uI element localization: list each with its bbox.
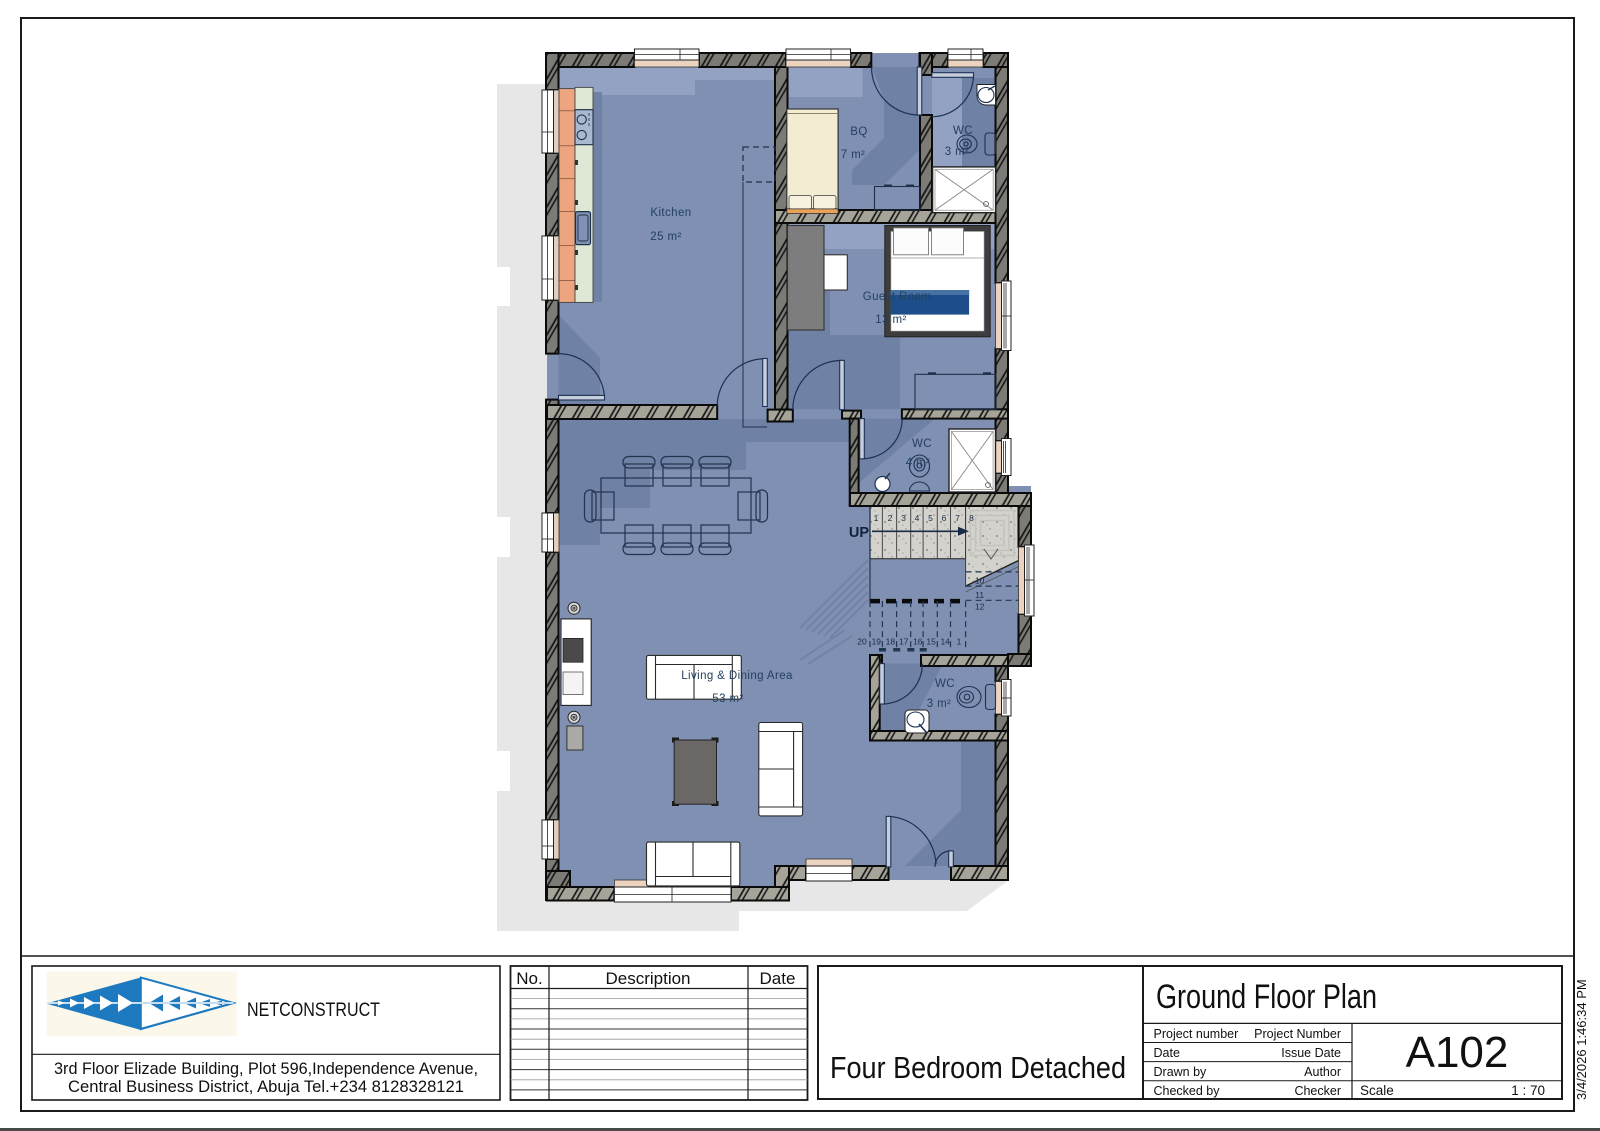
svg-text:1: 1	[957, 637, 962, 647]
svg-text:3/4/2026 1:46:34 PM: 3/4/2026 1:46:34 PM	[1574, 979, 1589, 1100]
svg-text:18: 18	[886, 637, 896, 647]
svg-text:BQ: BQ	[850, 126, 867, 138]
svg-text:1 : 70: 1 : 70	[1511, 1083, 1545, 1098]
svg-text:Guest Room: Guest Room	[863, 291, 932, 303]
svg-text:Checker: Checker	[1294, 1084, 1341, 1098]
svg-text:3 m²: 3 m²	[927, 698, 952, 710]
svg-text:Kitchen: Kitchen	[650, 207, 691, 219]
svg-text:UP: UP	[849, 525, 869, 541]
svg-text:25 m²: 25 m²	[650, 231, 681, 243]
svg-text:Date: Date	[760, 969, 796, 988]
svg-text:Scale: Scale	[1360, 1083, 1394, 1098]
svg-text:Author: Author	[1304, 1065, 1341, 1079]
svg-text:WC: WC	[935, 678, 955, 690]
svg-text:Four Bedroom Detached: Four Bedroom Detached	[830, 1050, 1126, 1085]
svg-text:16: 16	[913, 637, 923, 647]
svg-text:Checked by: Checked by	[1154, 1084, 1221, 1098]
svg-text:Project Number: Project Number	[1254, 1027, 1341, 1041]
svg-text:Date: Date	[1154, 1046, 1180, 1060]
svg-text:Issue Date: Issue Date	[1281, 1046, 1341, 1060]
svg-text:12: 12	[975, 602, 985, 612]
svg-text:A102: A102	[1406, 1028, 1509, 1077]
svg-text:19: 19	[872, 637, 882, 647]
svg-text:Living & Dining Area: Living & Dining Area	[681, 670, 793, 682]
svg-text:10: 10	[975, 576, 985, 586]
svg-text:WC: WC	[953, 125, 973, 137]
svg-text:20: 20	[857, 637, 867, 647]
svg-text:7 m²: 7 m²	[841, 149, 866, 161]
svg-text:Central Business District, Abu: Central Business District, Abuja Tel.+23…	[68, 1077, 464, 1096]
svg-text:17: 17	[899, 637, 909, 647]
svg-text:13 m²: 13 m²	[875, 314, 906, 326]
svg-text:2: 2	[888, 513, 893, 523]
svg-text:7: 7	[955, 513, 960, 523]
svg-text:1: 1	[874, 513, 879, 523]
svg-text:8: 8	[969, 513, 974, 523]
svg-text:4 m²: 4 m²	[906, 457, 931, 469]
svg-text:Ground Floor Plan: Ground Floor Plan	[1156, 978, 1377, 1016]
svg-text:NETCONSTRUCT: NETCONSTRUCT	[247, 1000, 380, 1021]
svg-text:11: 11	[975, 590, 984, 600]
svg-text:No.: No.	[516, 969, 542, 988]
svg-text:5: 5	[928, 513, 933, 523]
svg-text:3rd Floor Elizade Building, Pl: 3rd Floor Elizade Building, Plot 596,Ind…	[54, 1059, 478, 1078]
svg-text:WC: WC	[912, 438, 932, 450]
svg-text:14: 14	[940, 637, 950, 647]
svg-text:15: 15	[926, 637, 936, 647]
svg-text:Description: Description	[605, 969, 690, 988]
svg-text:3 m²: 3 m²	[945, 146, 970, 158]
svg-text:3: 3	[901, 513, 906, 523]
svg-text:4: 4	[915, 513, 920, 523]
svg-text:Project number: Project number	[1154, 1027, 1239, 1041]
svg-text:Drawn by: Drawn by	[1154, 1065, 1208, 1079]
svg-text:53 m²: 53 m²	[712, 693, 743, 705]
svg-text:6: 6	[942, 513, 947, 523]
